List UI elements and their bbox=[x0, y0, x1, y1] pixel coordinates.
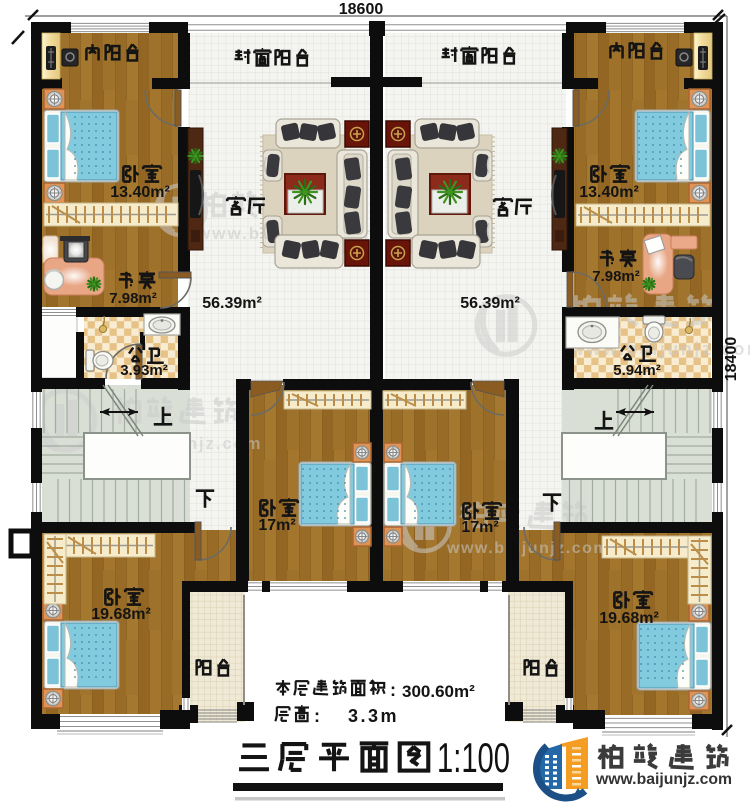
svg-text:19.68m²: 19.68m² bbox=[599, 610, 659, 627]
svg-text:3.3m: 3.3m bbox=[348, 706, 399, 726]
svg-text:17m²: 17m² bbox=[258, 517, 295, 534]
svg-text:300.60m²: 300.60m² bbox=[402, 682, 475, 701]
svg-text::: : bbox=[390, 680, 396, 700]
svg-text:7.98m²: 7.98m² bbox=[592, 268, 640, 285]
svg-text:18400: 18400 bbox=[723, 337, 740, 382]
svg-text:56.39m²: 56.39m² bbox=[202, 295, 262, 312]
svg-text:3.93m²: 3.93m² bbox=[120, 362, 168, 379]
svg-text:17m²: 17m² bbox=[461, 519, 498, 536]
svg-text:7.98m²: 7.98m² bbox=[109, 290, 157, 307]
svg-text:56.39m²: 56.39m² bbox=[460, 295, 520, 312]
svg-text:13.40m²: 13.40m² bbox=[579, 184, 639, 201]
svg-text:1:100: 1:100 bbox=[437, 734, 510, 781]
svg-text:5.94m²: 5.94m² bbox=[613, 362, 661, 379]
svg-text::: : bbox=[314, 706, 320, 726]
svg-text:19.68m²: 19.68m² bbox=[91, 606, 151, 623]
svg-text:18600: 18600 bbox=[339, 1, 384, 18]
svg-text:www.baijunjz.com: www.baijunjz.com bbox=[595, 771, 732, 788]
svg-text:13.40m²: 13.40m² bbox=[110, 184, 170, 201]
